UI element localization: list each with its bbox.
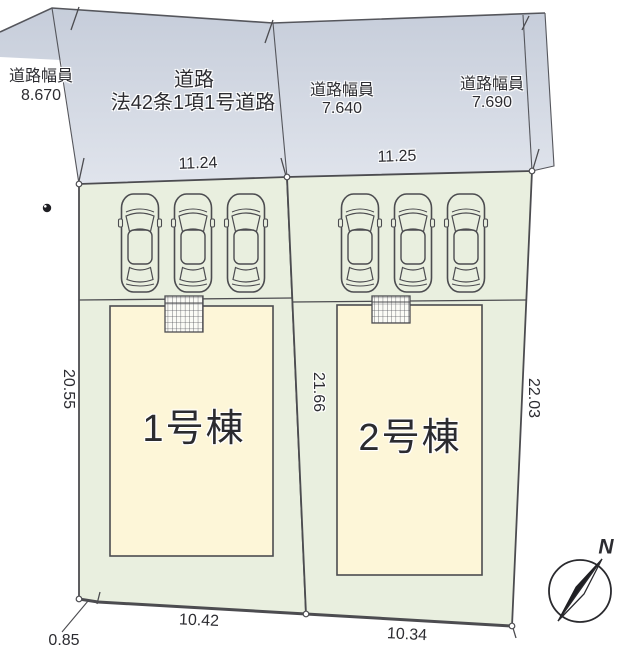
road-area	[0, 8, 554, 184]
dim-bottom-offset: 0.85	[48, 632, 79, 650]
road-width-mid-label: 道路幅員	[310, 82, 374, 100]
road-width-right-value: 7.690	[472, 94, 512, 112]
building-2-label: 2号棟	[358, 418, 461, 460]
dim-frontage-right: 11.25	[377, 148, 416, 167]
car-icon	[119, 194, 162, 292]
dim-depth-left: 20.55	[59, 369, 77, 409]
dim-bottom-width-right: 10.34	[387, 625, 428, 645]
leader-line-0-85	[62, 601, 88, 632]
road-name-line2: 法42条1項1号道路	[111, 92, 276, 114]
car-icon	[339, 194, 382, 292]
entrance-hatch-2	[372, 296, 410, 323]
car-icon	[172, 194, 215, 292]
compass-north-label: N	[598, 535, 613, 558]
dim-depth-right: 22.03	[524, 378, 542, 418]
road-width-mid-value: 7.640	[322, 100, 362, 118]
road-width-left-label: 道路幅員	[9, 68, 73, 86]
car-icon	[445, 194, 488, 292]
road-name-line1: 道路	[174, 69, 214, 91]
survey-marker-dot	[43, 204, 51, 212]
dim-bottom-width-left: 10.42	[179, 611, 220, 630]
car-icon	[392, 194, 435, 292]
site-plan: 道路幅員 8.670 道路 法42条1項1号道路 道路幅員 7.640 道路幅員…	[0, 0, 627, 663]
entrance-hatch-1	[165, 296, 203, 332]
road-width-right-label: 道路幅員	[460, 76, 524, 94]
dim-depth-center: 21.66	[309, 372, 327, 412]
dim-frontage-left: 11.24	[178, 155, 217, 174]
building-1-label: 1号棟	[142, 409, 245, 451]
car-icon	[225, 194, 268, 292]
road-width-left-value: 8.670	[21, 87, 61, 105]
compass-icon	[549, 559, 611, 622]
